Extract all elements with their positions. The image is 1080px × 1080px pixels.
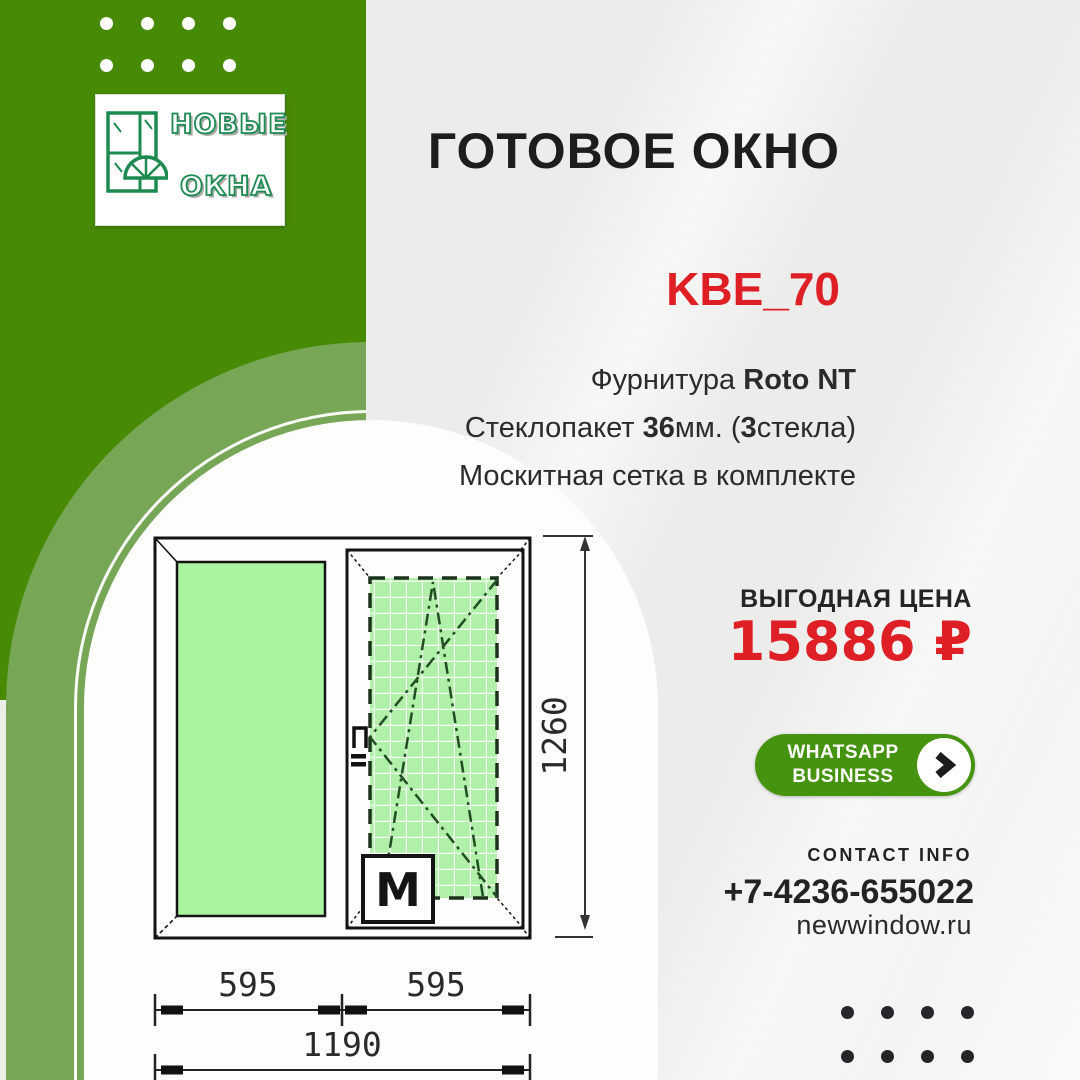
decor-dot (921, 1050, 934, 1063)
dimension-halves: 595 595 (155, 965, 530, 1026)
whatsapp-button-label: WHATSAPP BUSINESS (769, 741, 917, 789)
window-technical-drawing: M 1260 595 595 (135, 518, 595, 1080)
svg-text:595: 595 (406, 965, 466, 1004)
decor-dot (141, 17, 154, 30)
decor-dot (841, 1050, 854, 1063)
decor-dot (961, 1006, 974, 1019)
price-value: 15886 ₽ (728, 610, 972, 673)
chevron-right-icon (917, 738, 971, 792)
feature-line-2: Стеклопакет 36мм. (3стекла) (459, 404, 856, 452)
svg-text:M: M (375, 863, 421, 917)
brand-word-2: ОКНА (180, 171, 273, 202)
mosquito-net-mesh (370, 578, 497, 898)
window-logo-icon (106, 111, 168, 197)
decor-dot (961, 1050, 974, 1063)
svg-text:595: 595 (218, 965, 278, 1004)
mosquito-net-marker: M (363, 856, 433, 922)
contact-heading: CONTACT INFO (807, 845, 972, 866)
page-title: ГОТОВОЕ ОКНО (428, 122, 840, 180)
dot-grid-top-left (100, 17, 236, 72)
decor-dot (100, 59, 113, 72)
svg-text:1260: 1260 (535, 696, 574, 775)
fixed-pane-glass (177, 562, 325, 916)
model-name: KBE_70 (666, 262, 840, 316)
decor-dot (100, 17, 113, 30)
company-logo: НОВЫЕ ОКНА (95, 94, 285, 226)
decor-dot (182, 17, 195, 30)
contact-phone: +7-4236-655022 (723, 873, 974, 912)
decor-dot (182, 59, 195, 72)
decor-dot (881, 1050, 894, 1063)
decor-dot (921, 1006, 934, 1019)
feature-line-3: Москитная сетка в комплекте (459, 452, 856, 500)
dimension-total-width: 1190 (155, 1025, 530, 1080)
decor-dot (841, 1006, 854, 1019)
svg-text:1190: 1190 (302, 1025, 381, 1064)
feature-list: Фурнитура Roto NT Стеклопакет 36мм. (3ст… (459, 356, 856, 500)
decor-dot (141, 59, 154, 72)
brand-word-1: НОВЫЕ (170, 109, 288, 140)
dot-grid-bottom-right (841, 1006, 974, 1063)
whatsapp-business-button[interactable]: WHATSAPP BUSINESS (755, 734, 975, 796)
contact-website: newwindow.ru (796, 910, 972, 941)
dimension-height: 1260 (535, 536, 593, 937)
decor-dot (881, 1006, 894, 1019)
decor-dot (223, 59, 236, 72)
opening-sash: M (347, 550, 523, 928)
ad-poster: НОВЫЕ ОКНА ГОТОВОЕ ОКНО KBE_70 Фурнитура… (0, 0, 1080, 1080)
feature-line-1: Фурнитура Roto NT (459, 356, 856, 404)
decor-dot (223, 17, 236, 30)
